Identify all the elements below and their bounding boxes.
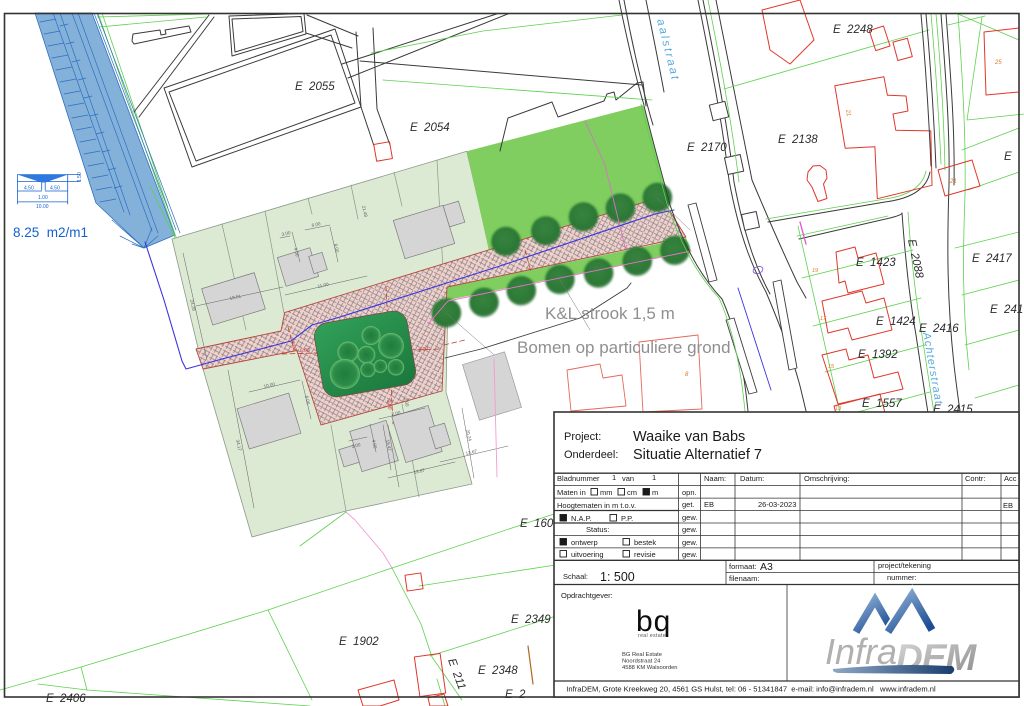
svg-text:Hoogtematen in m t.o.v.: Hoogtematen in m t.o.v. [557,501,636,510]
svg-text:E 2416: E 2416 [919,323,959,335]
svg-text:6.00: 6.00 [300,347,310,354]
svg-text:mm: mm [600,488,613,497]
svg-text:uitvoering: uitvoering [571,550,604,559]
svg-text:P.P.: P.P. [621,514,633,523]
svg-text:4.50: 4.50 [24,186,34,192]
svg-text:gew.: gew. [682,513,697,522]
svg-text:E 2417: E 2417 [972,253,1012,265]
svg-text:K&L strook 1,5 m: K&L strook 1,5 m [545,304,675,323]
svg-text:4588 KM Walsoorden: 4588 KM Walsoorden [622,665,678,671]
svg-text:project/tekening: project/tekening [878,561,931,570]
svg-text:E: E [1004,151,1012,163]
svg-text:8.25 m2/m1: 8.25 m2/m1 [13,225,88,240]
svg-text:ontwerp: ontwerp [571,538,598,547]
svg-text:gew.: gew. [682,550,697,559]
svg-text:filenaam:: filenaam: [729,574,759,583]
svg-text:E 2348: E 2348 [478,665,518,677]
svg-text:N.A.P.: N.A.P. [571,514,592,523]
svg-text:m: m [652,488,658,497]
svg-text:1.50: 1.50 [77,172,83,182]
svg-text:E 2054: E 2054 [410,122,450,134]
svg-text:get.: get. [682,500,695,509]
svg-text:Omschrijving:: Omschrijving: [804,474,849,483]
svg-text:E 1392: E 1392 [858,349,898,361]
svg-text:Bomen op particuliere grond: Bomen op particuliere grond [517,338,731,357]
svg-text:InfraDEM, Grote Kreekweg 20, 4: InfraDEM, Grote Kreekweg 20, 4561 GS Hul… [566,685,936,694]
svg-text:gew.: gew. [682,525,697,534]
svg-text:E 2170: E 2170 [687,142,727,154]
svg-text:revisie: revisie [634,550,656,559]
svg-text:1: 1 [652,473,656,482]
svg-text:E 160: E 160 [520,518,554,530]
svg-text:E 1557: E 1557 [862,398,902,410]
svg-text:Status:: Status: [586,525,609,534]
svg-text:E 1424: E 1424 [876,316,916,328]
svg-text:E 2248: E 2248 [833,24,873,36]
svg-text:Waaike van Babs: Waaike van Babs [633,429,745,445]
svg-text:van: van [622,474,634,483]
svg-text:26-03-2023: 26-03-2023 [758,500,796,509]
svg-text:BG Real Estate: BG Real Estate [622,652,662,658]
svg-text:EB: EB [1003,501,1013,510]
svg-text:real estate: real estate [638,633,666,639]
svg-text:1: 1 [612,473,616,482]
svg-text:Maten in: Maten in [557,488,586,497]
svg-text:17: 17 [820,316,827,322]
svg-text:bestek: bestek [634,538,656,547]
svg-text:10.00: 10.00 [36,204,49,210]
svg-text:Schaal:: Schaal: [563,572,588,581]
svg-text:4.50: 4.50 [50,186,60,192]
svg-text:Bladnummer: Bladnummer [557,474,600,483]
svg-text:25: 25 [994,60,1002,66]
svg-text:E 1423: E 1423 [856,257,896,269]
svg-text:Naam:: Naam: [704,474,726,483]
svg-text:E 2: E 2 [505,689,526,701]
svg-text:Datum:: Datum: [740,474,764,483]
svg-text:nummer:: nummer: [887,573,917,582]
svg-text:cm: cm [627,488,637,497]
svg-text:opn.: opn. [682,488,697,497]
svg-text:1: 500: 1: 500 [600,570,635,584]
svg-text:19: 19 [812,268,818,274]
svg-text:formaat:: formaat: [729,562,757,571]
svg-text:13: 13 [835,406,842,412]
svg-text:15: 15 [828,364,835,370]
svg-text:Noordstraat 24: Noordstraat 24 [622,659,661,665]
svg-text:1.00: 1.00 [38,195,48,201]
svg-text:gew.: gew. [682,538,697,547]
svg-text:Contr:: Contr: [965,474,985,483]
svg-text:Situatie Alternatief 7: Situatie Alternatief 7 [633,447,762,463]
svg-text:EB: EB [704,500,714,509]
svg-text:21: 21 [949,179,957,185]
svg-text:Project:: Project: [564,431,601,443]
svg-text:E 1902: E 1902 [339,636,379,648]
svg-text:Onderdeel:: Onderdeel: [564,449,618,461]
svg-text:Acc: Acc [1004,474,1017,483]
svg-text:E 2406: E 2406 [46,693,86,705]
svg-text:E 2138: E 2138 [778,134,818,146]
svg-text:E 2349: E 2349 [511,614,551,626]
svg-text:E 2055: E 2055 [295,81,335,93]
svg-text:Opdrachtgever:: Opdrachtgever: [561,591,613,600]
svg-text:A3: A3 [760,561,773,573]
